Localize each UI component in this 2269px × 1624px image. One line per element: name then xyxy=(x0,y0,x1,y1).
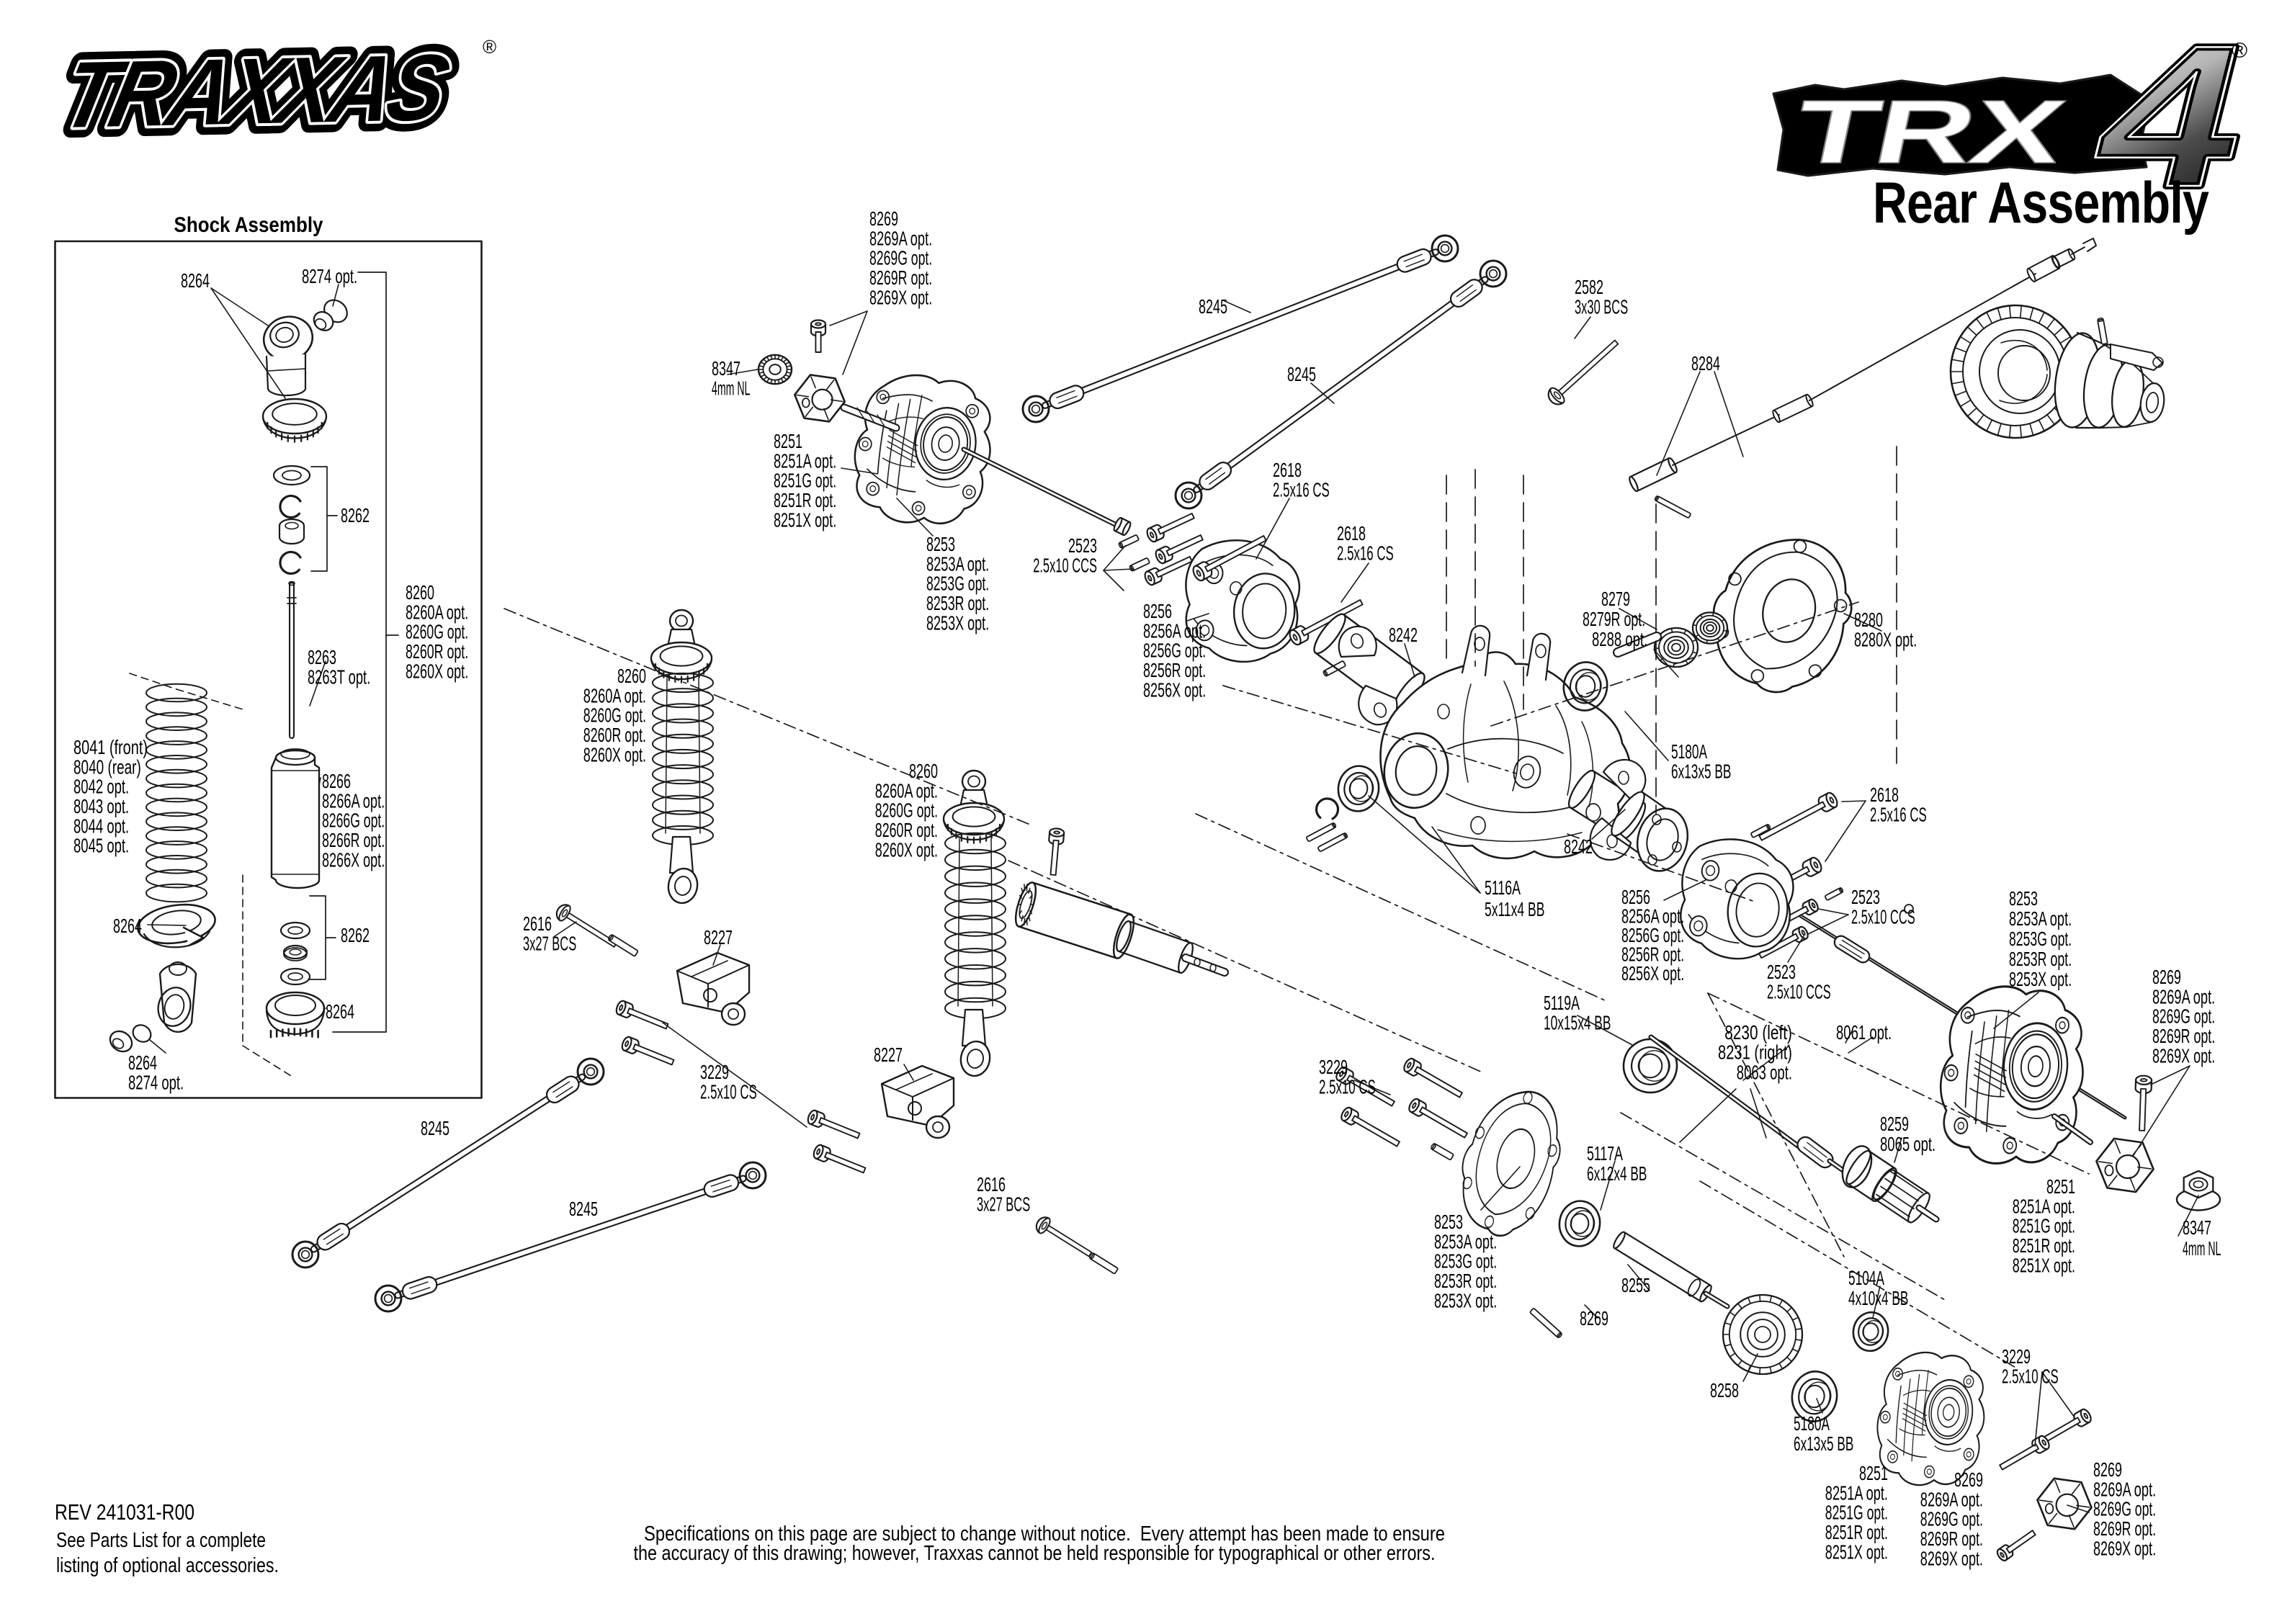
svg-text:8255: 8255 xyxy=(1621,1274,1650,1296)
svg-text:TRAXXAS: TRAXXAS xyxy=(53,35,457,148)
svg-text:8279: 8279 xyxy=(1601,588,1630,610)
svg-text:3x27 BCS: 3x27 BCS xyxy=(523,932,576,954)
svg-text:8280X opt.: 8280X opt. xyxy=(1854,628,1917,650)
svg-text:Rear Assembly: Rear Assembly xyxy=(1873,171,2209,235)
svg-text:8259: 8259 xyxy=(1880,1113,1909,1135)
svg-text:listing of optional accessorie: listing of optional accessories. xyxy=(56,1554,279,1577)
svg-text:8227: 8227 xyxy=(874,1044,903,1066)
svg-text:8269X opt.: 8269X opt. xyxy=(1920,1547,1983,1569)
svg-text:8253A opt.: 8253A opt. xyxy=(2009,907,2072,930)
svg-text:®: ® xyxy=(483,36,496,58)
svg-text:8245: 8245 xyxy=(1287,363,1316,385)
svg-text:4mm NL: 4mm NL xyxy=(712,377,750,399)
svg-text:8253R opt.: 8253R opt. xyxy=(2009,948,2072,970)
svg-text:TRX: TRX xyxy=(1785,81,2073,181)
svg-text:8347: 8347 xyxy=(2183,1216,2211,1239)
svg-text:8274 opt.: 8274 opt. xyxy=(128,1071,184,1093)
svg-text:8061 opt.: 8061 opt. xyxy=(1836,1021,1892,1044)
svg-text:8242: 8242 xyxy=(1389,624,1418,646)
svg-text:3x30 BCS: 3x30 BCS xyxy=(1575,295,1628,318)
svg-text:2.5x10 CS: 2.5x10 CS xyxy=(1319,1075,1376,1098)
svg-text:8262: 8262 xyxy=(341,504,370,526)
svg-text:REV 241031-R00: REV 241031-R00 xyxy=(55,1500,194,1525)
svg-text:8260X opt.: 8260X opt. xyxy=(406,660,468,682)
svg-text:®: ® xyxy=(2232,39,2247,63)
svg-text:6x13x5 BB: 6x13x5 BB xyxy=(1671,760,1731,782)
svg-text:8045 opt.: 8045 opt. xyxy=(73,835,129,857)
svg-text:8251X opt.: 8251X opt. xyxy=(774,508,836,531)
svg-text:5104A: 5104A xyxy=(1848,1267,1884,1289)
svg-text:8269X opt.: 8269X opt. xyxy=(2152,1044,2215,1067)
svg-text:the accuracy of this drawing;: the accuracy of this drawing; however, T… xyxy=(634,1542,1436,1565)
svg-text:8258: 8258 xyxy=(1710,1379,1739,1401)
svg-text:8269: 8269 xyxy=(1580,1307,1608,1329)
svg-text:8260X opt.: 8260X opt. xyxy=(875,838,938,861)
svg-text:8256X opt.: 8256X opt. xyxy=(1621,962,1684,984)
svg-text:8262: 8262 xyxy=(341,924,370,946)
svg-text:5180A: 5180A xyxy=(1794,1412,1830,1435)
svg-text:8230 (left): 8230 (left) xyxy=(1724,1021,1792,1044)
svg-text:8231 (right): 8231 (right) xyxy=(1718,1041,1792,1064)
svg-text:8264: 8264 xyxy=(113,915,142,937)
svg-text:8284: 8284 xyxy=(1691,352,1720,374)
svg-text:2.5x16 CS: 2.5x16 CS xyxy=(1273,478,1330,501)
svg-text:8260X opt.: 8260X opt. xyxy=(583,743,646,766)
svg-text:8063 opt.: 8063 opt. xyxy=(1737,1061,1792,1083)
svg-text:5x11x4 BB: 5x11x4 BB xyxy=(1485,898,1544,920)
svg-text:8245: 8245 xyxy=(421,1117,449,1139)
svg-text:2.5x10 CS: 2.5x10 CS xyxy=(2002,1365,2059,1387)
svg-text:8269X opt.: 8269X opt. xyxy=(869,286,932,308)
svg-text:8264: 8264 xyxy=(181,269,210,292)
svg-text:5117A: 5117A xyxy=(1587,1142,1623,1165)
svg-text:8253X opt.: 8253X opt. xyxy=(926,611,989,634)
svg-text:2.5x10 CCS: 2.5x10 CCS xyxy=(1767,980,1831,1002)
svg-text:8065 opt.: 8065 opt. xyxy=(1880,1133,1935,1155)
svg-text:6x13x5 BB: 6x13x5 BB xyxy=(1794,1432,1853,1455)
svg-text:8266X opt.: 8266X opt. xyxy=(322,848,385,871)
svg-text:8288 opt.: 8288 opt. xyxy=(1592,628,1647,650)
svg-text:8251X opt.: 8251X opt. xyxy=(1825,1540,1888,1563)
svg-text:2.5x16 CS: 2.5x16 CS xyxy=(1870,803,1927,825)
svg-text:8242: 8242 xyxy=(1564,835,1593,858)
svg-text:8245: 8245 xyxy=(569,1198,598,1220)
svg-text:8245: 8245 xyxy=(1199,295,1227,318)
svg-text:8264: 8264 xyxy=(326,1000,354,1023)
svg-text:2.5x16 CS: 2.5x16 CS xyxy=(1337,542,1394,564)
svg-text:5116A: 5116A xyxy=(1485,876,1521,899)
svg-text:8253X opt.: 8253X opt. xyxy=(1434,1289,1497,1311)
svg-text:8269X opt.: 8269X opt. xyxy=(2093,1537,2156,1559)
svg-text:2.5x10 CCS: 2.5x10 CCS xyxy=(1851,905,1915,928)
svg-text:2.5x10 CS: 2.5x10 CS xyxy=(700,1080,757,1103)
svg-text:4mm NL: 4mm NL xyxy=(2183,1237,2221,1260)
svg-text:2.5x10 CCS: 2.5x10 CCS xyxy=(1033,554,1097,576)
svg-text:8263T opt.: 8263T opt. xyxy=(308,665,370,688)
svg-text:8253: 8253 xyxy=(2009,887,2038,910)
svg-text:Shock Assembly: Shock Assembly xyxy=(174,213,323,237)
svg-text:8227: 8227 xyxy=(704,926,733,948)
svg-text:See Parts List for a complete: See Parts List for a complete xyxy=(56,1529,266,1552)
svg-text:10x15x4 BB: 10x15x4 BB xyxy=(1544,1011,1611,1033)
svg-text:3x27 BCS: 3x27 BCS xyxy=(977,1193,1030,1215)
svg-text:8256X opt.: 8256X opt. xyxy=(1143,678,1206,701)
svg-text:8253G opt.: 8253G opt. xyxy=(2009,928,2072,950)
svg-text:8251X opt.: 8251X opt. xyxy=(2013,1254,2075,1276)
svg-text:8274 opt.: 8274 opt. xyxy=(302,265,357,287)
svg-text:8253X opt.: 8253X opt. xyxy=(2009,968,2072,990)
svg-text:6x12x4 BB: 6x12x4 BB xyxy=(1587,1162,1647,1185)
svg-text:4x10x4 BB: 4x10x4 BB xyxy=(1848,1287,1908,1309)
svg-text:8279R opt.: 8279R opt. xyxy=(1583,608,1645,630)
